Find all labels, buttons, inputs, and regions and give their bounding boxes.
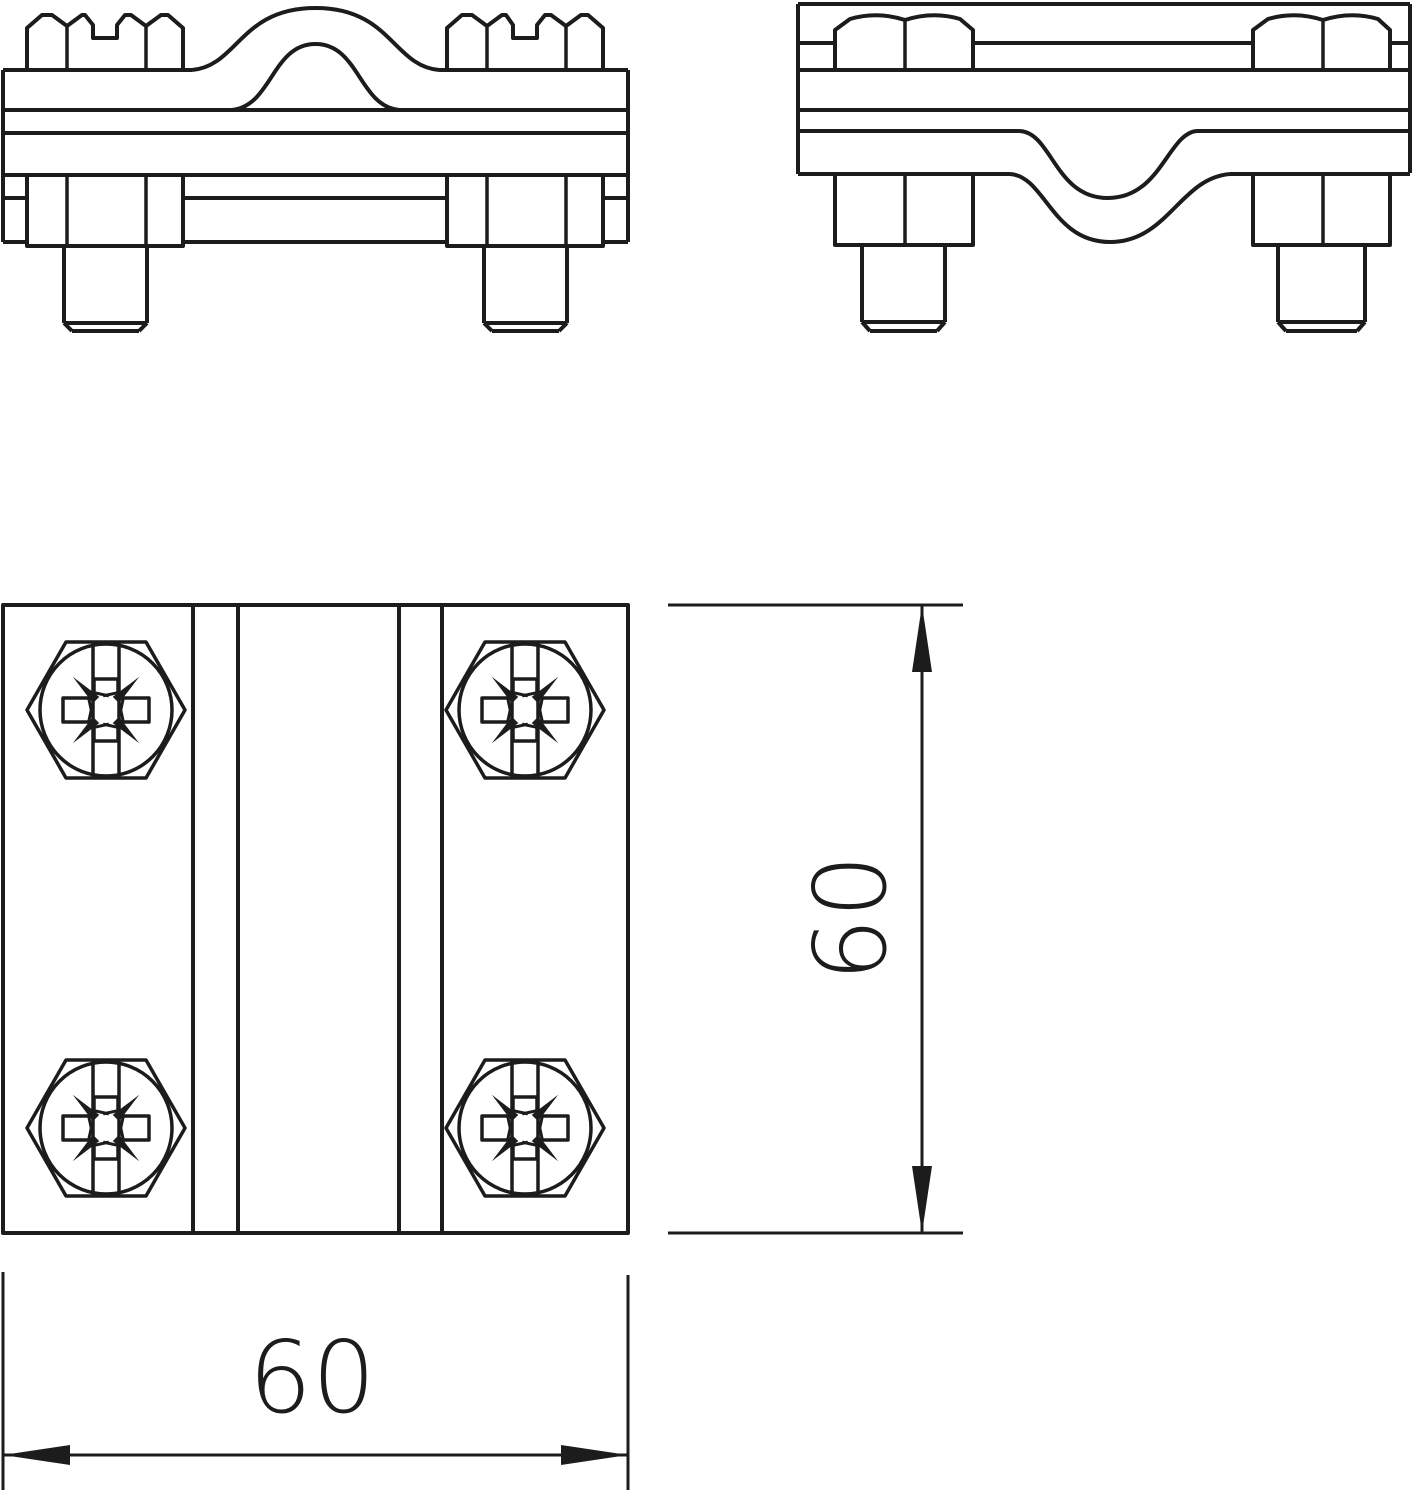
front-nut-right-facets [487,175,566,246]
front-hump-inner [232,44,399,110]
front-nut-left-facets [67,175,146,246]
front-nut-left [27,175,183,246]
side-stud-left [862,245,945,331]
plan-view [3,605,628,1233]
plan-screw-top-left [27,642,185,778]
side-nut-right [1253,173,1390,245]
side-bolt-head-right [1253,15,1390,68]
front-nut-right [447,175,603,246]
technical-drawing-sheet: 60 60 [0,0,1428,1500]
front-hump-outer [192,8,439,70]
side-channel-dip-upper [1020,131,1197,198]
plan-channel-lines [193,605,442,1233]
horizontal-dimension-arrow-left [3,1445,70,1465]
front-bolt-head-left [27,15,183,70]
front-bolt-head-right [447,15,603,70]
side-stud-right [1278,245,1365,331]
front-stud-right [484,246,567,331]
side-view [798,4,1410,331]
vertical-dimension: 60 [668,605,963,1233]
front-stud-left [64,246,147,331]
horizontal-dimension-arrow-right [561,1445,628,1465]
plan-screw-bottom-right [446,1060,604,1196]
vertical-dimension-arrow-up [912,605,932,672]
plan-screw-top-right [446,642,604,778]
vertical-dimension-label: 60 [792,854,909,981]
horizontal-dimension: 60 [3,1272,628,1490]
front-bolt-head-left-facets [67,26,146,70]
plan-screw-bottom-left [27,1060,185,1196]
side-nut-left [835,174,973,245]
front-bolt-head-right-facets [487,26,566,70]
cross-connector-drawing: 60 60 [0,0,1428,1500]
front-view [3,8,628,331]
vertical-dimension-arrow-down [912,1166,932,1233]
side-bolt-head-left [835,15,973,68]
horizontal-dimension-label: 60 [248,1319,375,1436]
side-channel-dip-lower [1010,174,1230,242]
